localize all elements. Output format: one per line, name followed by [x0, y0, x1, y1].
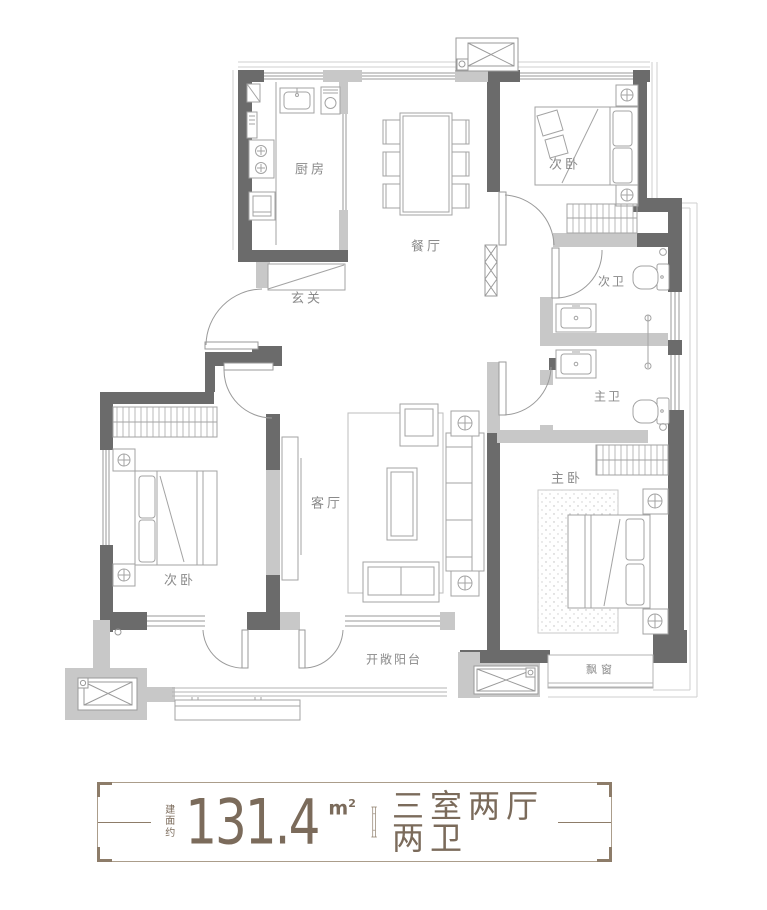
- column-hatched: [485, 245, 497, 296]
- gas-meter: [321, 87, 340, 114]
- door-bath-secondary: [552, 248, 602, 298]
- window-bedroom-left-west: [100, 450, 113, 545]
- floor-drain: [660, 249, 667, 256]
- area-prefix: 建面约: [165, 805, 175, 840]
- area-info-panel: 建面约 131.4 m2 三室两厅两卫: [97, 782, 612, 862]
- label-balcony: 开敞阳台: [366, 651, 422, 668]
- bedroom-left-furniture: [113, 407, 217, 586]
- nightstand: [643, 489, 668, 514]
- divider-line-right: [558, 822, 611, 823]
- balcony-railing: [172, 688, 447, 696]
- label-dining: 餐厅: [411, 236, 443, 255]
- tv-cabinet: [282, 437, 301, 580]
- wardrobe-left: [113, 407, 217, 437]
- divider-line-left: [98, 822, 151, 823]
- shaft-top: [456, 38, 518, 71]
- side-table: [451, 571, 479, 596]
- window-dining-north: [362, 70, 455, 82]
- area-value: 131.4: [185, 791, 318, 854]
- door-entry: [205, 289, 262, 349]
- window-bath-master-east: [668, 355, 682, 410]
- window-bedroom-left-south: [147, 612, 205, 630]
- nightstand: [113, 564, 135, 586]
- window-living-south: [345, 612, 440, 630]
- door-bedroom-top: [499, 192, 554, 245]
- floor-drain: [660, 424, 667, 431]
- label-bedroom-left: 次卧: [164, 570, 196, 589]
- label-bath-secondary: 次卫: [598, 273, 626, 290]
- entry-cabinet: [268, 264, 345, 290]
- door-balcony-left: [203, 630, 248, 668]
- armchair: [400, 404, 438, 446]
- label-bath-master: 主卫: [594, 388, 622, 405]
- label-living: 客厅: [311, 493, 343, 512]
- kitchen-sink: [280, 88, 314, 113]
- sink: [556, 304, 596, 332]
- nightstand: [643, 609, 668, 634]
- toilet: [633, 398, 669, 424]
- bed-left: [135, 471, 217, 565]
- door-master-suite: [499, 362, 551, 415]
- window-kitchen-north: [264, 70, 323, 82]
- area-unit-exponent: 2: [348, 797, 356, 810]
- floorplan-drawing: [0, 0, 767, 740]
- dining-set: [383, 113, 469, 215]
- nightstand: [616, 185, 638, 206]
- layout-description: 三室两厅两卫: [392, 790, 548, 854]
- wardrobe-top: [567, 204, 637, 233]
- area-info-content: 建面约 131.4 m2 三室两厅两卫: [98, 783, 611, 861]
- label-entry: 玄关: [291, 288, 323, 307]
- area-unit-symbol: m: [328, 797, 348, 819]
- loveseat: [363, 562, 439, 602]
- sink: [556, 350, 596, 378]
- area-unit: m2: [328, 797, 355, 819]
- toilet: [633, 264, 669, 290]
- wardrobe-master: [596, 445, 668, 475]
- bed-master: [568, 515, 650, 608]
- label-kitchen: 厨房: [295, 159, 327, 178]
- bed-top: [535, 107, 638, 185]
- dining-table: [400, 113, 452, 215]
- label-bay-window: 飘窗: [586, 661, 616, 677]
- label-bedroom-top: 次卧: [549, 154, 581, 173]
- floorplan-page: 厨房 餐厅 玄关 次卧 次卫 主卫 主卧 客厅 次卧 开敞阳台 飘窗 建面约 1…: [0, 0, 767, 910]
- window-bath-secondary-east: [668, 292, 682, 340]
- label-bedroom-master: 主卧: [551, 468, 583, 487]
- window-bedroom-top-north: [520, 70, 633, 82]
- nightstand: [616, 85, 638, 106]
- divider-ornament-icon: [370, 798, 378, 846]
- coffee-table: [387, 468, 417, 540]
- kitchen-cabinet: [247, 84, 260, 102]
- sliding-door-kitchen: [343, 114, 346, 210]
- nightstand: [113, 449, 135, 471]
- door-balcony-right: [299, 630, 343, 668]
- kitchen-shelf: [247, 112, 257, 138]
- side-table: [451, 411, 479, 436]
- door-bedroom-left: [224, 363, 273, 418]
- stove: [249, 140, 274, 178]
- shaft-bottom-right: [474, 666, 538, 694]
- sofa-main: [446, 433, 484, 571]
- ac-unit: [175, 697, 300, 720]
- kitchen-appliance: [249, 192, 275, 220]
